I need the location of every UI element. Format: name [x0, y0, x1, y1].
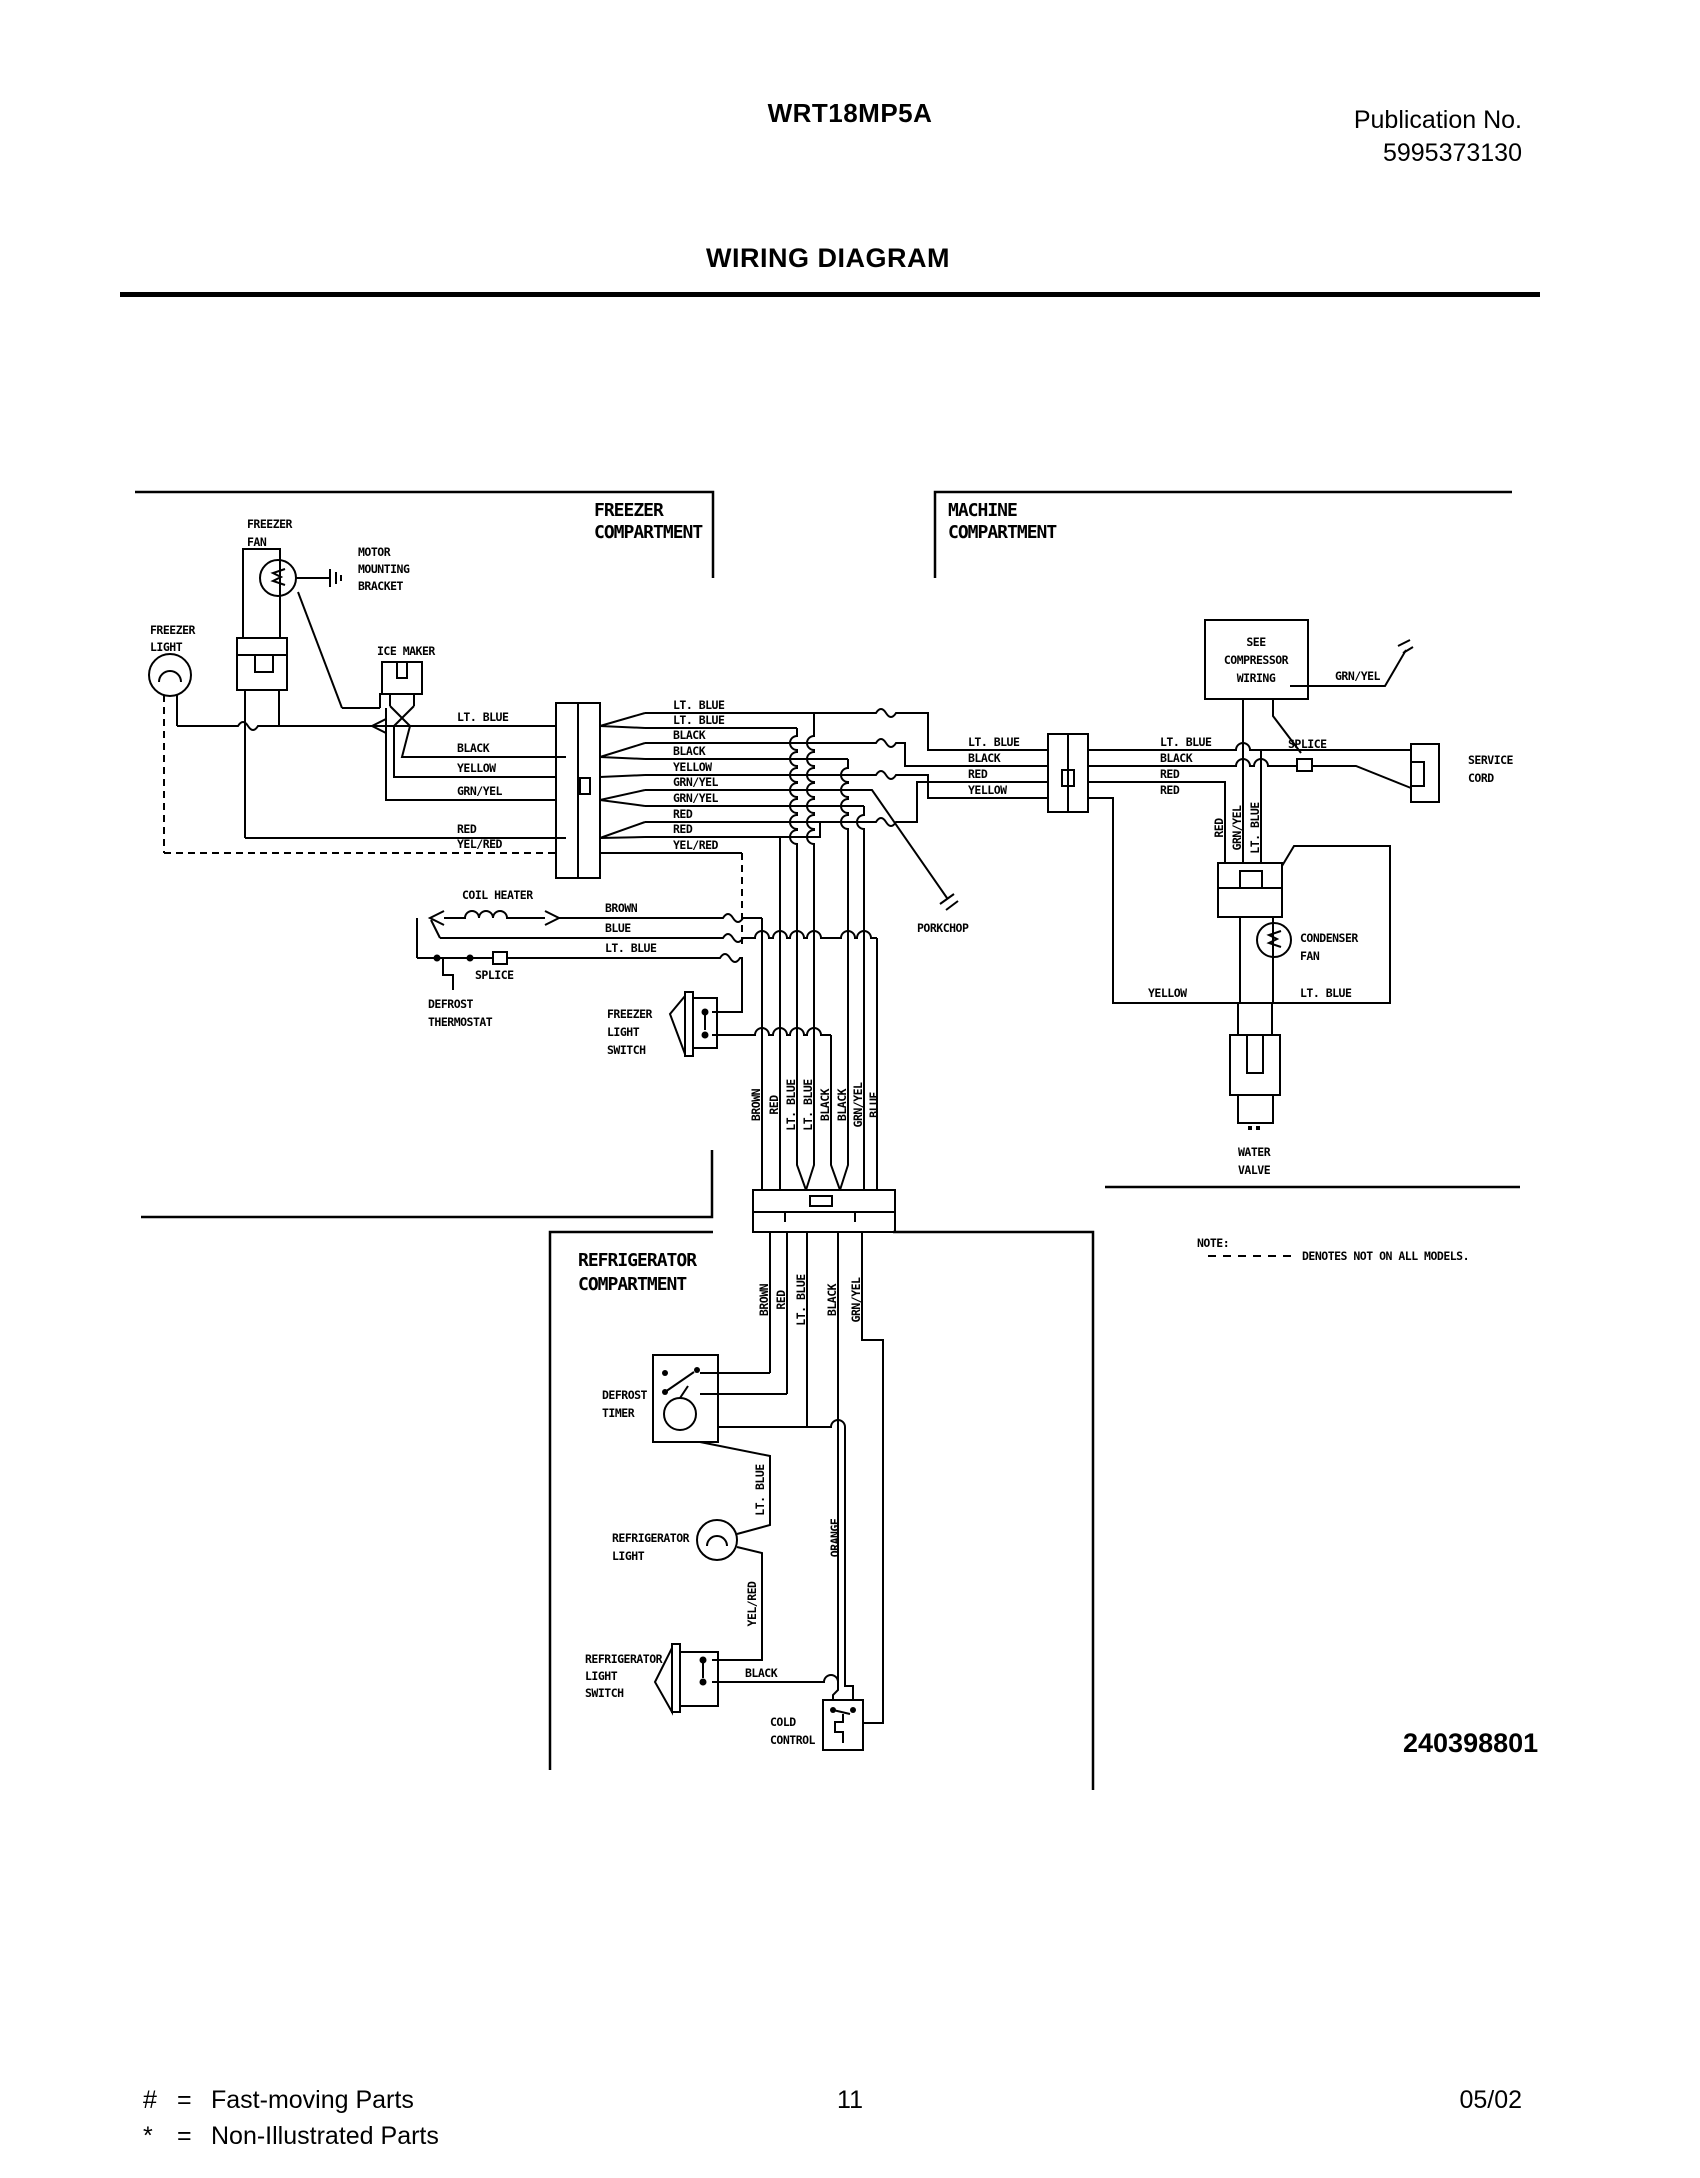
- service-cord-plug: [1411, 744, 1439, 802]
- refrigerator-compartment-label: REFRIGERATOR: [578, 1250, 697, 1271]
- freezer-compartment-label: FREEZER: [594, 500, 664, 521]
- crimp-splices: [600, 713, 645, 853]
- refrigerator-light-switch-label: SWITCH: [585, 1686, 624, 1700]
- date: 05/02: [1459, 2086, 1522, 2115]
- coil-heater-label: COIL HEATER: [462, 888, 533, 902]
- wiring-diagram-page: { "header": { "model": "WRT18MP5A", "pub…: [0, 0, 1700, 2178]
- wire-label: RED: [457, 822, 477, 836]
- relay-connector: [1218, 863, 1282, 917]
- wire-label: GRN/YEL: [851, 1082, 865, 1128]
- wire-label: LT. BLUE: [673, 713, 725, 727]
- cold-control-label: CONTROL: [770, 1733, 816, 1747]
- condenser-fan-label: FAN: [1300, 949, 1320, 963]
- splice-label: SPLICE: [1288, 737, 1327, 751]
- harness-connector-1: [556, 703, 600, 878]
- condenser-fan-symbol: [1240, 917, 1291, 1003]
- wire-label: ORANGE: [828, 1518, 842, 1557]
- refrigerator-light-switch-label: LIGHT: [585, 1669, 618, 1683]
- wire-label: BLACK: [1160, 751, 1193, 765]
- wire-label: LT. BLUE: [753, 1464, 767, 1516]
- defrost-thermostat-label: THERMOSTAT: [428, 1015, 493, 1029]
- wire-label: YEL/RED: [745, 1581, 759, 1627]
- harness-connector-2: [753, 1190, 895, 1232]
- wire-label: BLUE: [867, 1092, 881, 1118]
- machine-compartment-label: MACHINE: [948, 500, 1017, 521]
- note-text: DENOTES NOT ON ALL MODELS.: [1302, 1249, 1469, 1263]
- wire-label: RED: [767, 1095, 781, 1115]
- freezer-light-switch-label: FREEZER: [607, 1007, 653, 1021]
- legend-label: Non-Illustrated Parts: [211, 2122, 439, 2150]
- refrigerator-light-switch-symbol: [655, 1644, 718, 1712]
- refrigerator-compartment-label: COMPARTMENT: [578, 1274, 687, 1295]
- wire-label: RED: [673, 807, 693, 821]
- wire-label: RED: [1160, 767, 1180, 781]
- water-valve-symbol: [1230, 1035, 1280, 1130]
- freezer-light-label: LIGHT: [150, 640, 183, 654]
- wire-label: BLACK: [673, 728, 706, 742]
- service-cord-label: SERVICE: [1468, 753, 1514, 767]
- wire-label: BROWN: [757, 1283, 771, 1316]
- wire-label: LT. BLUE: [605, 941, 657, 955]
- page-number: 11: [0, 2086, 1700, 2115]
- legend-non-illustrated: *=Non-Illustrated Parts: [143, 2122, 439, 2151]
- cold-control-symbol: [823, 1700, 863, 1750]
- condenser-fan-label: CONDENSER: [1300, 931, 1358, 945]
- freezer-compartment-label: COMPARTMENT: [594, 522, 703, 543]
- freezer-light-switch-symbol: [670, 992, 831, 1056]
- wire-label: BLACK: [673, 744, 706, 758]
- freezer-light-switch-label: LIGHT: [607, 1025, 640, 1039]
- wire-label: GRN/YEL: [673, 791, 719, 805]
- wire-label: YELLOW: [457, 761, 496, 775]
- wire-label: LT. BLUE: [1160, 735, 1212, 749]
- wire-label: BROWN: [605, 901, 638, 915]
- service-cord-label: CORD: [1468, 771, 1494, 785]
- wire-label: LT. BLUE: [673, 698, 725, 712]
- refrigerator-light-label: LIGHT: [612, 1549, 645, 1563]
- refrigerator-light-switch-label: REFRIGERATOR: [585, 1652, 663, 1666]
- coil-heater-circuit: [417, 911, 877, 1012]
- wiring-diagram: FREEZER COMPARTMENT MACHINE COMPARTMENT …: [0, 0, 1700, 2178]
- motor-mounting-bracket-label: BRACKET: [358, 579, 404, 593]
- wire-label: LT. BLUE: [784, 1079, 798, 1131]
- cold-control-label: COLD: [770, 1715, 796, 1729]
- freezer-light-label: FREEZER: [150, 623, 196, 637]
- wire-label: RED: [774, 1290, 788, 1310]
- note-label: NOTE:: [1197, 1236, 1229, 1250]
- wire-label: BLACK: [745, 1666, 778, 1680]
- defrost-timer-label: DEFROST: [602, 1388, 648, 1402]
- legend-symbol: *: [143, 2122, 177, 2151]
- freezer-left-wires: [164, 708, 556, 853]
- wire-label: BLACK: [835, 1088, 849, 1121]
- wire-label: YEL/RED: [457, 837, 503, 851]
- legend-equals: =: [177, 2122, 211, 2151]
- wire-label: RED: [673, 822, 693, 836]
- wire-label: LT. BLUE: [1248, 802, 1262, 854]
- machine-compartment-label: COMPARTMENT: [948, 522, 1057, 543]
- wire-label: LT. BLUE: [1300, 986, 1352, 1000]
- wire-label: LT. BLUE: [968, 735, 1020, 749]
- water-valve-label: WATER: [1238, 1145, 1271, 1159]
- wire-label: LT. BLUE: [794, 1274, 808, 1326]
- motor-mounting-bracket-label: MOTOR: [358, 545, 391, 559]
- wire-label: RED: [968, 767, 988, 781]
- harness-connector-3: [1048, 734, 1088, 812]
- wire-label: YELLOW: [673, 760, 712, 774]
- wire-label: LT. BLUE: [457, 710, 509, 724]
- wire-label: BLACK: [825, 1283, 839, 1316]
- compressor-label: SEE: [1246, 635, 1266, 649]
- compressor-label: WIRING: [1237, 671, 1276, 685]
- wire-label: GRN/YEL: [1335, 669, 1381, 683]
- freezer-light-symbol: [149, 654, 191, 853]
- wire-label: BROWN: [749, 1088, 763, 1121]
- wire-label: RED: [1160, 783, 1180, 797]
- wire-label: GRN/YEL: [673, 775, 719, 789]
- defrost-timer-label: TIMER: [602, 1406, 635, 1420]
- defrost-timer-symbol: [653, 1355, 718, 1442]
- compressor-label: COMPRESSOR: [1224, 653, 1289, 667]
- freezer-fan-label: FREEZER: [247, 517, 293, 531]
- wire-label: BLUE: [605, 921, 631, 935]
- wire-label: GRN/YEL: [1230, 805, 1244, 851]
- wire-label: YELLOW: [1148, 986, 1187, 1000]
- wire-label: RED: [1212, 818, 1226, 838]
- part-number: 240398801: [1403, 1728, 1538, 1758]
- ice-maker-label: ICE MAKER: [377, 644, 435, 658]
- defrost-thermostat-label: DEFROST: [428, 997, 474, 1011]
- wire-label: YELLOW: [968, 783, 1007, 797]
- wire-label: LT. BLUE: [801, 1079, 815, 1131]
- freezer-fan-label: FAN: [247, 535, 267, 549]
- wire-label: BLACK: [968, 751, 1001, 765]
- refrigerator-light-symbol: [697, 1520, 737, 1560]
- wire-label: BLACK: [818, 1088, 832, 1121]
- wire-label: BLACK: [457, 741, 490, 755]
- wire-label: GRN/YEL: [457, 784, 503, 798]
- splice-label: SPLICE: [475, 968, 514, 982]
- wire-label: YEL/RED: [673, 838, 719, 852]
- wire-label: GRN/YEL: [849, 1277, 863, 1323]
- freezer-light-switch-label: SWITCH: [607, 1043, 646, 1057]
- refrigerator-light-label: REFRIGERATOR: [612, 1531, 690, 1545]
- motor-mounting-bracket-label: MOUNTING: [358, 562, 410, 576]
- porkchop-label: PORKCHOP: [917, 921, 969, 935]
- water-valve-label: VALVE: [1238, 1163, 1271, 1177]
